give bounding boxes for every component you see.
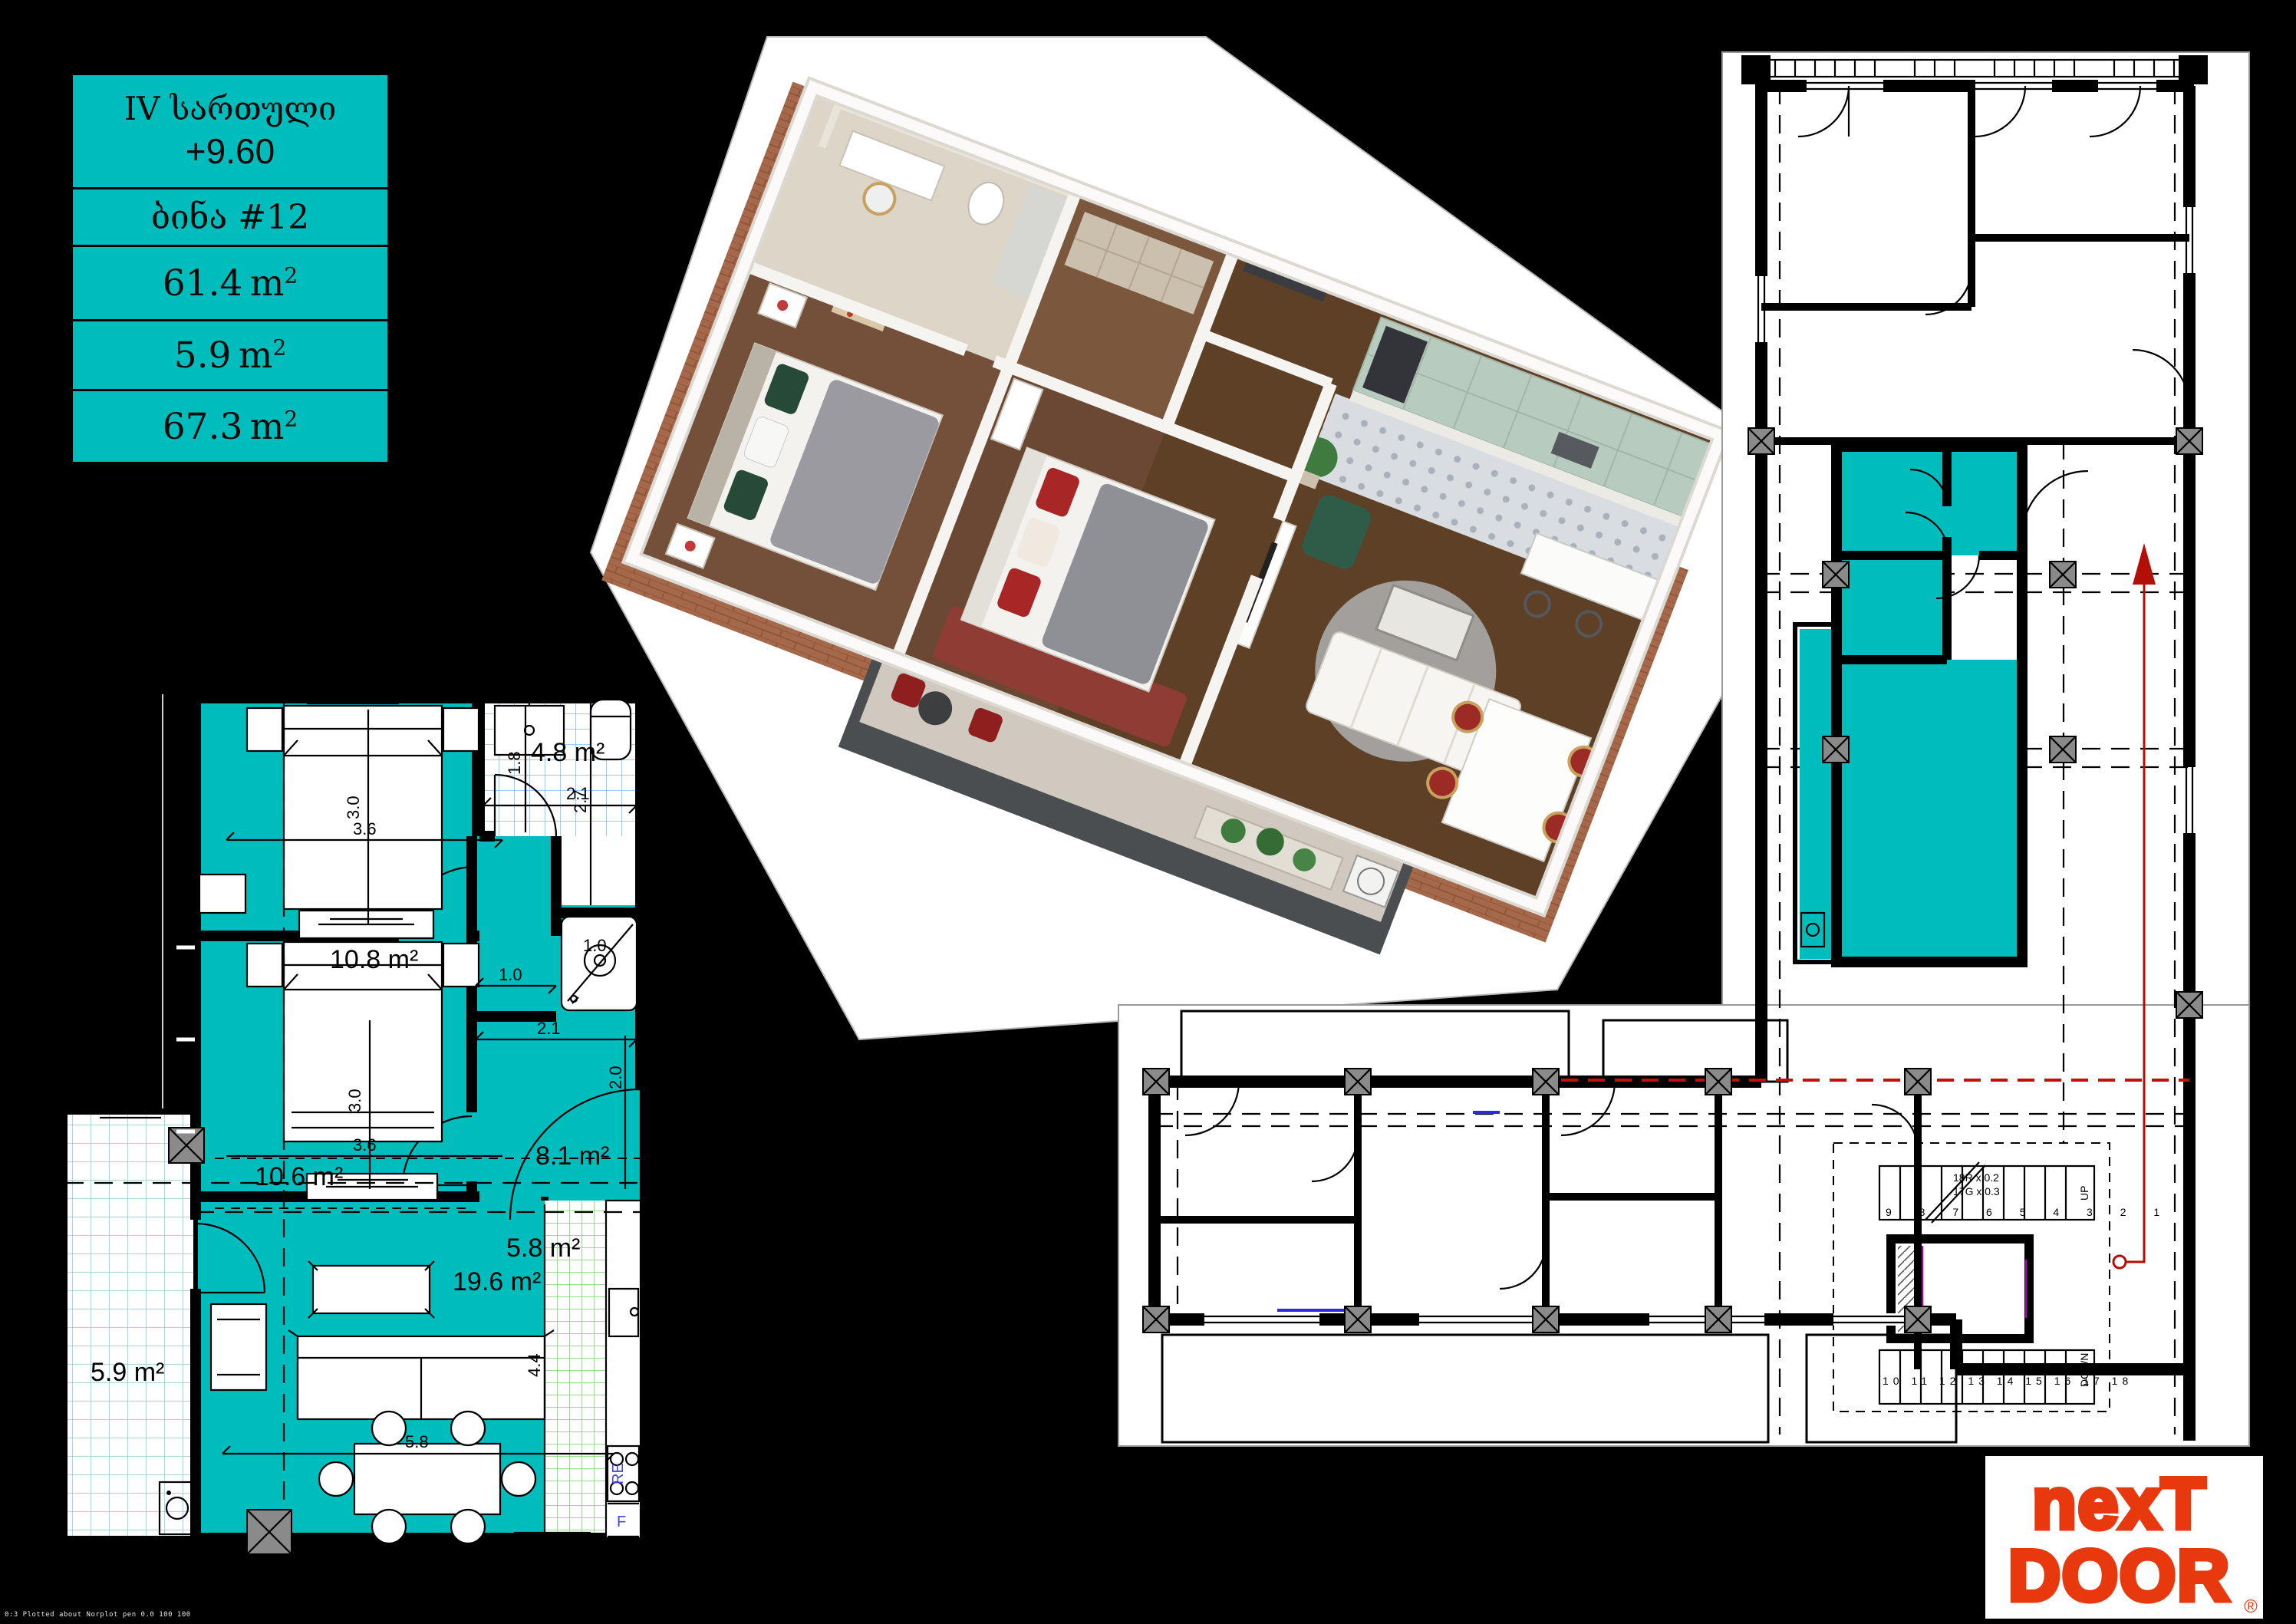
svg-text:19.6 m²: 19.6 m² (453, 1267, 541, 1296)
plan-backdrop (1118, 52, 2249, 1446)
unit-plan-2d: 3.6 3.0 1.8 2.1 2.7 1.0 1.0 2.1 2.0 3.6 … (54, 683, 652, 1603)
brand-logo: nexT DOOR ® (1985, 1456, 2263, 1619)
svg-text:2.7: 2.7 (571, 789, 590, 813)
svg-text:3.0: 3.0 (345, 1089, 364, 1112)
svg-text:3.0: 3.0 (344, 796, 363, 819)
registered-mark: ® (2244, 1596, 2258, 1617)
svg-text:4.8 m²: 4.8 m² (531, 738, 604, 767)
floorplan-sheet: IV სართული +9.60 ბინა #12 61.4 m2 5.9 m2… (0, 0, 2296, 1624)
apartment-info-panel: IV სართული +9.60 ბინა #12 61.4 m2 5.9 m2… (73, 75, 387, 462)
svg-text:5.9 m²: 5.9 m² (91, 1358, 164, 1387)
apartment-number: ბინა #12 (73, 189, 387, 247)
logo-line2: DOOR (2008, 1535, 2231, 1616)
svg-text:8.1 m²: 8.1 m² (535, 1141, 609, 1171)
svg-text:9 8 7 6 5 4 3 2 1: 9 8 7 6 5 4 3 2 1 (1886, 1206, 2172, 1218)
svg-text:3.6: 3.6 (353, 819, 377, 838)
svg-text:3.6: 3.6 (353, 1135, 377, 1155)
svg-text:UP: UP (2078, 1186, 2090, 1201)
svg-text:2.1: 2.1 (537, 1019, 561, 1038)
svg-text:RE: RE (610, 1463, 627, 1484)
floor-label: IV სართული (73, 89, 387, 130)
svg-text:4.4: 4.4 (525, 1353, 544, 1377)
svg-text:1.8: 1.8 (505, 751, 524, 775)
svg-text:10 11 12 13 14 15 16 17 18: 10 11 12 13 14 15 16 17 18 (1883, 1375, 2133, 1387)
svg-text:5.8 m²: 5.8 m² (506, 1234, 580, 1263)
svg-text:10.6 m²: 10.6 m² (255, 1162, 343, 1191)
building-plan: 18R x 0.2 17G x 0.3 UP 9 8 7 6 5 4 3 2 1… (1112, 46, 2255, 1450)
svg-text:10.8 m²: 10.8 m² (330, 945, 418, 974)
svg-text:1.0: 1.0 (583, 936, 607, 955)
svg-text:18R x 0.2: 18R x 0.2 (1953, 1171, 1999, 1184)
area-balcony: 5.9 m2 (73, 321, 387, 391)
svg-text:5.8: 5.8 (405, 1432, 429, 1451)
area-living: 61.4 m2 (73, 247, 387, 321)
svg-text:17G x 0.3: 17G x 0.3 (1953, 1185, 2000, 1197)
floor-row: IV სართული +9.60 (73, 75, 387, 189)
plot-stamp: 0:3 Plotted about Norplot pen 0.0 100 10… (5, 1611, 191, 1619)
logo-line1: nexT (2032, 1463, 2206, 1543)
svg-text:F: F (617, 1514, 626, 1530)
level-label: +9.60 (73, 130, 387, 174)
area-total: 67.3 m2 (73, 391, 387, 462)
svg-text:1.0: 1.0 (499, 965, 522, 984)
svg-text:2.0: 2.0 (606, 1066, 625, 1089)
